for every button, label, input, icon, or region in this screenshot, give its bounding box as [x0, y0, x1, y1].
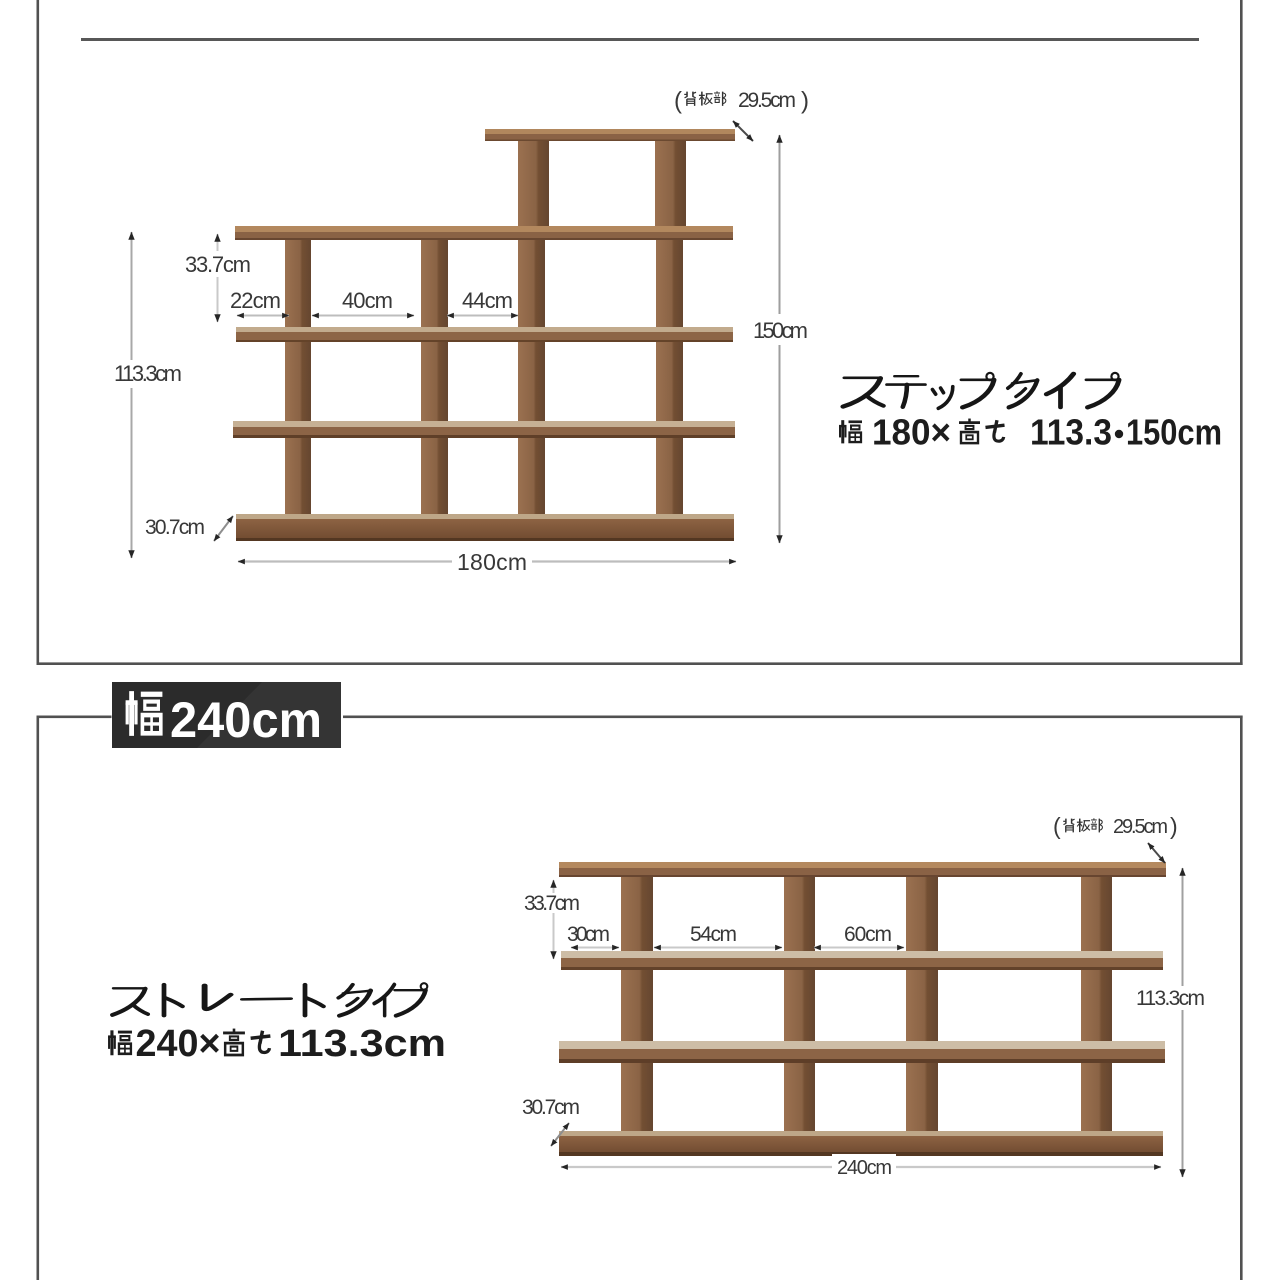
svg-text:180×: 180×: [872, 412, 951, 453]
svg-text:40cm: 40cm: [342, 288, 393, 313]
svg-text:150cm: 150cm: [753, 318, 808, 343]
svg-text:22cm: 22cm: [230, 288, 281, 313]
svg-text:(: (: [1053, 813, 1061, 839]
svg-text:113.3cm: 113.3cm: [1136, 987, 1205, 1010]
svg-text:29.5cm: 29.5cm: [1113, 816, 1168, 838]
svg-text:113.3cm: 113.3cm: [114, 361, 182, 386]
svg-text:30cm: 30cm: [567, 923, 610, 946]
svg-text:29.5cm: 29.5cm: [738, 89, 796, 112]
svg-text:54cm: 54cm: [690, 923, 737, 946]
svg-text:44cm: 44cm: [462, 288, 513, 313]
svg-text:30.7cm: 30.7cm: [145, 516, 205, 539]
svg-text:150cm: 150cm: [1126, 412, 1222, 453]
svg-text:113.3cm: 113.3cm: [278, 1023, 446, 1065]
svg-text:): ): [801, 88, 809, 115]
svg-text:113.3: 113.3: [1030, 412, 1112, 453]
svg-text:180cm: 180cm: [457, 549, 527, 575]
svg-text:240×: 240×: [136, 1023, 221, 1065]
svg-text:): ): [1170, 813, 1178, 839]
svg-text:33.7cm: 33.7cm: [524, 892, 580, 915]
svg-text:240cm: 240cm: [170, 692, 322, 748]
svg-text:60cm: 60cm: [844, 923, 892, 946]
svg-text:33.7cm: 33.7cm: [185, 252, 251, 277]
svg-text:240cm: 240cm: [837, 1157, 892, 1179]
svg-text:30.7cm: 30.7cm: [522, 1096, 580, 1119]
svg-text:(: (: [674, 88, 682, 115]
